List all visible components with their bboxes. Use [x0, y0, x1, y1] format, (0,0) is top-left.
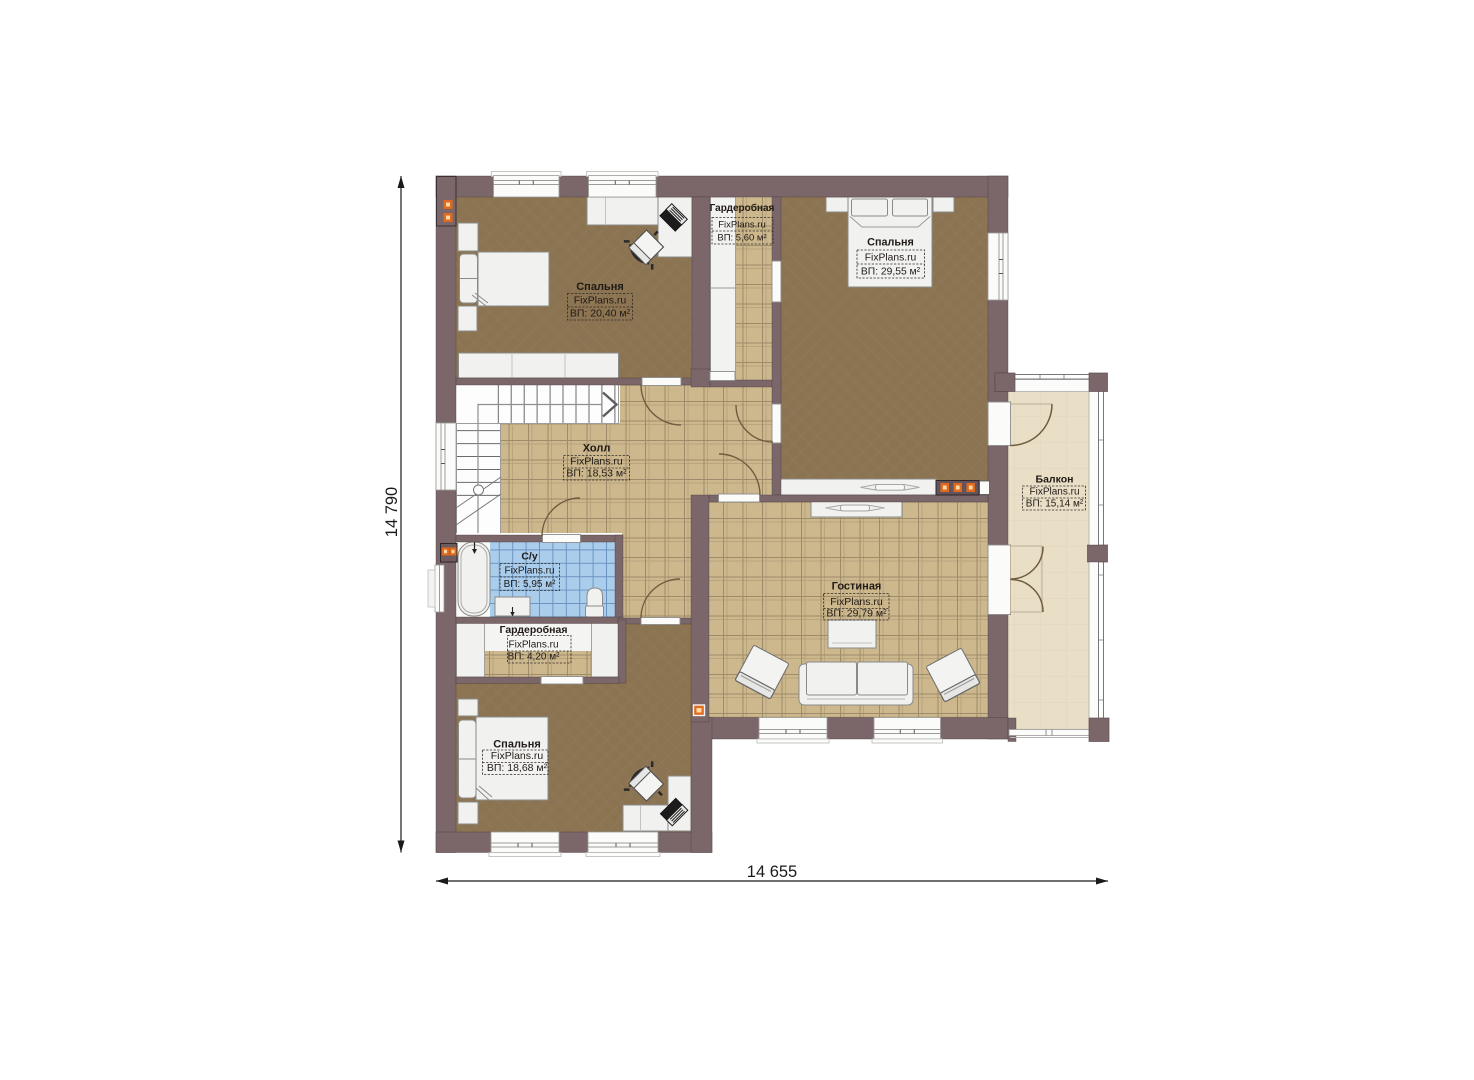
svg-text:ВП: 15,14 м²: ВП: 15,14 м²	[1026, 499, 1084, 510]
svg-text:FixPlans.ru: FixPlans.ru	[570, 456, 623, 468]
svg-text:Балкон: Балкон	[1036, 474, 1074, 486]
svg-text:ВП: 29,55 м²: ВП: 29,55 м²	[861, 267, 921, 278]
svg-text:ВП: 18,68 м²: ВП: 18,68 м²	[487, 762, 548, 774]
svg-text:Спальня: Спальня	[576, 281, 624, 293]
svg-text:С/у: С/у	[521, 551, 538, 563]
svg-text:FixPlans.ru: FixPlans.ru	[491, 750, 544, 762]
svg-text:Холл: Холл	[583, 443, 611, 455]
svg-text:FixPlans.ru: FixPlans.ru	[865, 253, 917, 264]
svg-text:Гардеробная: Гардеробная	[500, 624, 568, 636]
svg-text:FixPlans.ru: FixPlans.ru	[718, 220, 766, 231]
svg-text:14 790: 14 790	[383, 487, 401, 537]
svg-text:14 655: 14 655	[747, 863, 797, 881]
svg-text:ВП: 29,79 м²: ВП: 29,79 м²	[826, 608, 887, 620]
svg-text:Гардеробная: Гардеробная	[710, 202, 775, 214]
svg-text:Спальня: Спальня	[493, 739, 541, 751]
svg-text:FixPlans.ru: FixPlans.ru	[508, 640, 558, 651]
svg-text:FixPlans.ru: FixPlans.ru	[504, 566, 554, 577]
svg-text:Гостиная: Гостиная	[832, 581, 882, 593]
svg-text:ВП: 4,20 м²: ВП: 4,20 м²	[508, 652, 561, 663]
svg-text:FixPlans.ru: FixPlans.ru	[574, 295, 627, 307]
svg-text:ВП: 5,60 м²: ВП: 5,60 м²	[717, 233, 766, 244]
svg-text:ВП: 20,40 м²: ВП: 20,40 м²	[570, 308, 631, 320]
svg-text:FixPlans.ru: FixPlans.ru	[1029, 487, 1079, 498]
svg-text:FixPlans.ru: FixPlans.ru	[830, 596, 883, 608]
svg-text:Спальня: Спальня	[867, 237, 914, 249]
svg-text:ВП: 18,53 м²: ВП: 18,53 м²	[566, 468, 627, 480]
svg-text:ВП: 5,95 м²: ВП: 5,95 м²	[504, 579, 557, 590]
